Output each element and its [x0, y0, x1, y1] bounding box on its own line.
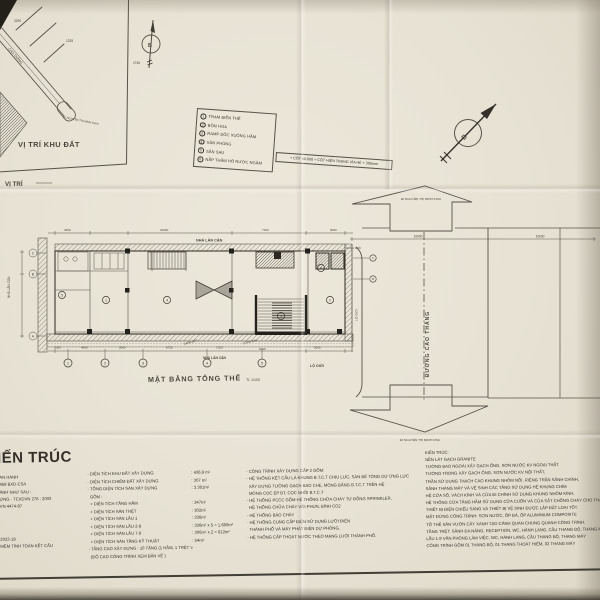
compass-north-label: B — [148, 43, 152, 49]
svg-text:4: 4 — [206, 361, 209, 366]
setback-label: LỘ GIỚI — [310, 363, 324, 368]
stair-flight — [148, 252, 186, 269]
legend-item-number: 4 — [198, 139, 204, 145]
legend-box: 1 TRẠM BIẾN THẾ 2 BỒN HOA 3 RAMP DỐC XUỐ… — [193, 108, 277, 172]
notes-heading: IẾN TRÚC — [0, 449, 72, 467]
svg-text:5: 5 — [261, 361, 264, 366]
site-map-street-note: ĐI NGUYỄN THỊ MINH KHAI — [63, 114, 100, 126]
legend-items: 1 TRẠM BIẾN THẾ 2 BỒN HOA 3 RAMP DỐC XUỐ… — [197, 112, 272, 168]
bottom-dim-line — [48, 349, 353, 359]
svg-text:7100: 7100 — [216, 345, 223, 349]
top-neighbor-wall — [55, 244, 345, 251]
site-map-dim: 3290 — [14, 19, 21, 23]
street-boundary-label: RANH GIỚI — [346, 245, 361, 250]
svg-text:1: 1 — [67, 361, 70, 366]
elevator-shaft — [331, 253, 344, 269]
svg-text:24000: 24000 — [160, 228, 169, 232]
systems-notes: - CÔNG TRÌNH XÂY DỰNG CẤP 2 GỒM:- HỆ THỐ… — [246, 465, 427, 541]
notes-line: MỀM TÍNH TOÁN KẾT CẤU — [0, 542, 86, 551]
compass-small: B — [142, 20, 160, 68]
stat-value — [193, 550, 247, 558]
svg-text:6: 6 — [320, 266, 322, 270]
legend-item-label: SÂN SAU — [206, 148, 225, 154]
street-dim: 10000 — [536, 234, 545, 238]
grid-bubbles — [64, 359, 266, 367]
svg-text:3450: 3450 — [64, 228, 71, 232]
core-fill — [274, 252, 281, 259]
compass-big: B — [440, 104, 496, 163]
svg-text:4: 4 — [166, 298, 168, 302]
finishes-notes: KIẾN TRÚC:NỀN LÁT GẠCH GRANITETƯỜNG BAO … — [425, 446, 600, 549]
svg-text:4600: 4600 — [81, 345, 88, 349]
svg-text:6000: 6000 — [259, 347, 266, 351]
legend-item-number: 5 — [198, 148, 204, 154]
legend-item-label: BỒN HOA — [208, 123, 227, 129]
site-map-dim: 2746 — [133, 61, 140, 65]
site-map: 3290 1235 2746 CAO THẮNG ĐI NGUYỄN THỊ M… — [0, 0, 140, 188]
plan-scale: TL 1/100 — [246, 378, 260, 382]
svg-text:2: 2 — [329, 298, 331, 302]
svg-text:C: C — [32, 251, 35, 255]
legend-item-number: 6 — [197, 156, 203, 162]
legend-item-label: NẮP THĂM HỐ NƯỚC NGẦM — [205, 157, 262, 166]
wc-fixtures — [58, 252, 124, 271]
svg-text:C: C — [372, 256, 375, 260]
legend-item-number: 1 — [200, 113, 206, 119]
stat-label: (ĐỘ CAO CÔNG TRÌNH XEM BẢN VẼ ) — [89, 551, 193, 560]
arrow-down-outline — [350, 385, 488, 432]
svg-text:2: 2 — [104, 361, 107, 366]
sidewalk-band — [47, 341, 353, 347]
area-statistics: - DIỆN TÍCH KHU ĐẤT XÂY DỰNG : 436,9 m² … — [87, 468, 246, 560]
site-map-road-name: CAO THẮNG — [7, 46, 24, 65]
svg-text:B: B — [372, 277, 374, 281]
columns — [87, 249, 342, 335]
legend-item-label: VĂN PHÒNG — [207, 140, 232, 147]
street-lines — [352, 228, 600, 402]
right-boundary-strip — [345, 244, 352, 341]
svg-text:1: 1 — [105, 298, 107, 302]
survey-marker-letters: C B — [372, 256, 375, 281]
bottom-boundary-wall — [47, 334, 353, 341]
svg-text:7100: 7100 — [262, 228, 269, 232]
svg-text:5000: 5000 — [314, 345, 321, 349]
title-block-rule — [0, 568, 600, 579]
notes-section: IẾN TRÚC AN HÀNH459 BXD-CSAÀNH NHƯ SAU :… — [0, 438, 600, 597]
legend-item-number: 3 — [199, 130, 205, 136]
street-name: ĐƯỜNG CAO THẮNG — [423, 311, 431, 377]
street-dim-line — [350, 237, 596, 241]
svg-text:5000: 5000 — [119, 345, 126, 349]
notes-left-column-2: 2023-19MỀM TÍNH TOÁN KẾT CẤU — [0, 534, 86, 550]
bowtie-symbol — [196, 281, 232, 299]
street-section: 10000 10000 ĐƯỜNG CAO THẮNG RANH GIỚI LỘ… — [346, 186, 600, 442]
neighbor-left-label: NHÀ LÂN CẬN — [7, 276, 11, 298]
svg-text:8730: 8730 — [166, 345, 173, 349]
scan-corner — [0, 0, 17, 30]
svg-text:B: B — [32, 272, 35, 276]
setback-label-vertical: LỘ GIỚI — [354, 309, 359, 321]
svg-text:5: 5 — [61, 293, 63, 297]
street-dim: 10000 — [414, 234, 423, 238]
plan-title: MẶT BẰNG TỔNG THỂ — [148, 373, 241, 384]
arrow-up-label: ĐI NGUYỄN THỊ MINH KHAI — [401, 196, 441, 201]
svg-text:A: A — [32, 334, 35, 338]
top-dims: 3450 24000 7100 6000 — [64, 228, 337, 232]
notes-left-column: AN HÀNH459 BXD-CSAÀNH NHƯ SAU :ỰNG - TCX… — [0, 472, 86, 510]
left-grid-letters: C B A — [32, 251, 35, 338]
svg-text:3: 3 — [142, 361, 145, 366]
neighbor-top-label: NHÀ LÂN CẬN — [196, 238, 223, 243]
arrow-up-outline — [352, 186, 472, 231]
site-map-caption: VỊ TRÍ — [5, 180, 23, 188]
stat-row: (ĐỘ CAO CÔNG TRÌNH XEM BẢN VẼ ) — [89, 550, 247, 560]
scanned-drawing-page: 3290 1235 2746 CAO THẮNG ĐI NGUYỄN THỊ M… — [0, 0, 600, 600]
svg-text:6000: 6000 — [330, 228, 337, 232]
top-dim-line — [48, 231, 353, 235]
floor-plan: 1 4 3 5 6 2 3450 24000 7100 6000 NHÀ LÂN… — [7, 228, 353, 384]
legend-item-number: 2 — [200, 122, 206, 128]
svg-text:3: 3 — [280, 314, 282, 318]
left-boundary-wall — [38, 238, 47, 352]
svg-text:2080: 2080 — [54, 345, 61, 349]
site-map-dim: 1235 — [66, 39, 73, 43]
paper-bottom-edge — [0, 587, 600, 600]
grid-bubble-numbers: 1 2 3 4 5 — [67, 361, 264, 366]
site-map-title: VỊ TRÍ KHU ĐẤT — [18, 139, 80, 149]
notes-line: VN 4474-87 — [0, 502, 86, 511]
